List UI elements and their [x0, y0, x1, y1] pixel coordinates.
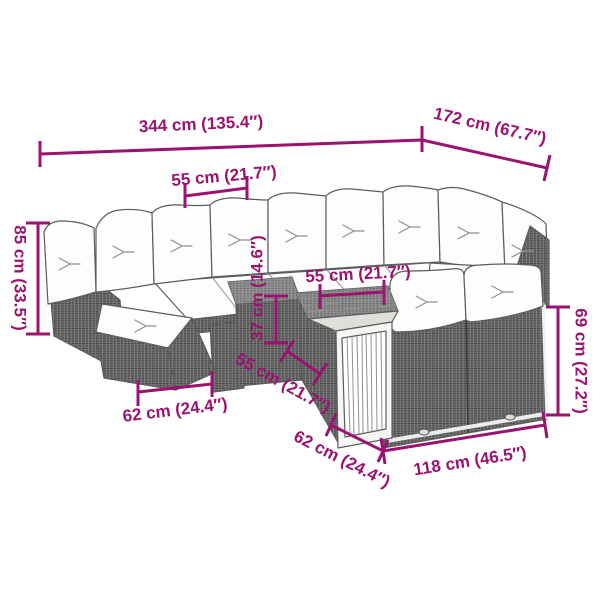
- back-cushions-left: [44, 209, 154, 304]
- dimension-label-back-seat-width: 55 cm (21.7″): [171, 162, 278, 190]
- dimension-label-total-depth: 172 cm (67.7″): [432, 104, 548, 148]
- dimension-total-depth: 172 cm (67.7″): [422, 104, 550, 181]
- dimension-label-right-section-width: 118 cm (46.5″): [412, 443, 528, 480]
- sofa-dimension-drawing: 344 cm (135.4″) 172 cm (67.7″) 55 cm (21…: [0, 0, 600, 600]
- dimension-total-width: 344 cm (135.4″): [40, 112, 422, 167]
- dimension-label-right-side-height: 69 cm (27.2″): [572, 308, 591, 413]
- sofa-foot: [505, 414, 515, 420]
- dimension-label-total-height: 85 cm (33.5″): [11, 225, 30, 330]
- sofa-illustration: [44, 186, 549, 448]
- dimension-label-total-width: 344 cm (135.4″): [138, 112, 263, 136]
- dimension-label-table-height: 37 cm (14.6″): [248, 235, 267, 340]
- right-section: [383, 263, 547, 448]
- dimension-right-side-height: 69 cm (27.2″): [546, 307, 591, 415]
- product-dimension-diagram: 344 cm (135.4″) 172 cm (67.7″) 55 cm (21…: [0, 0, 600, 600]
- sofa-foot: [419, 429, 429, 435]
